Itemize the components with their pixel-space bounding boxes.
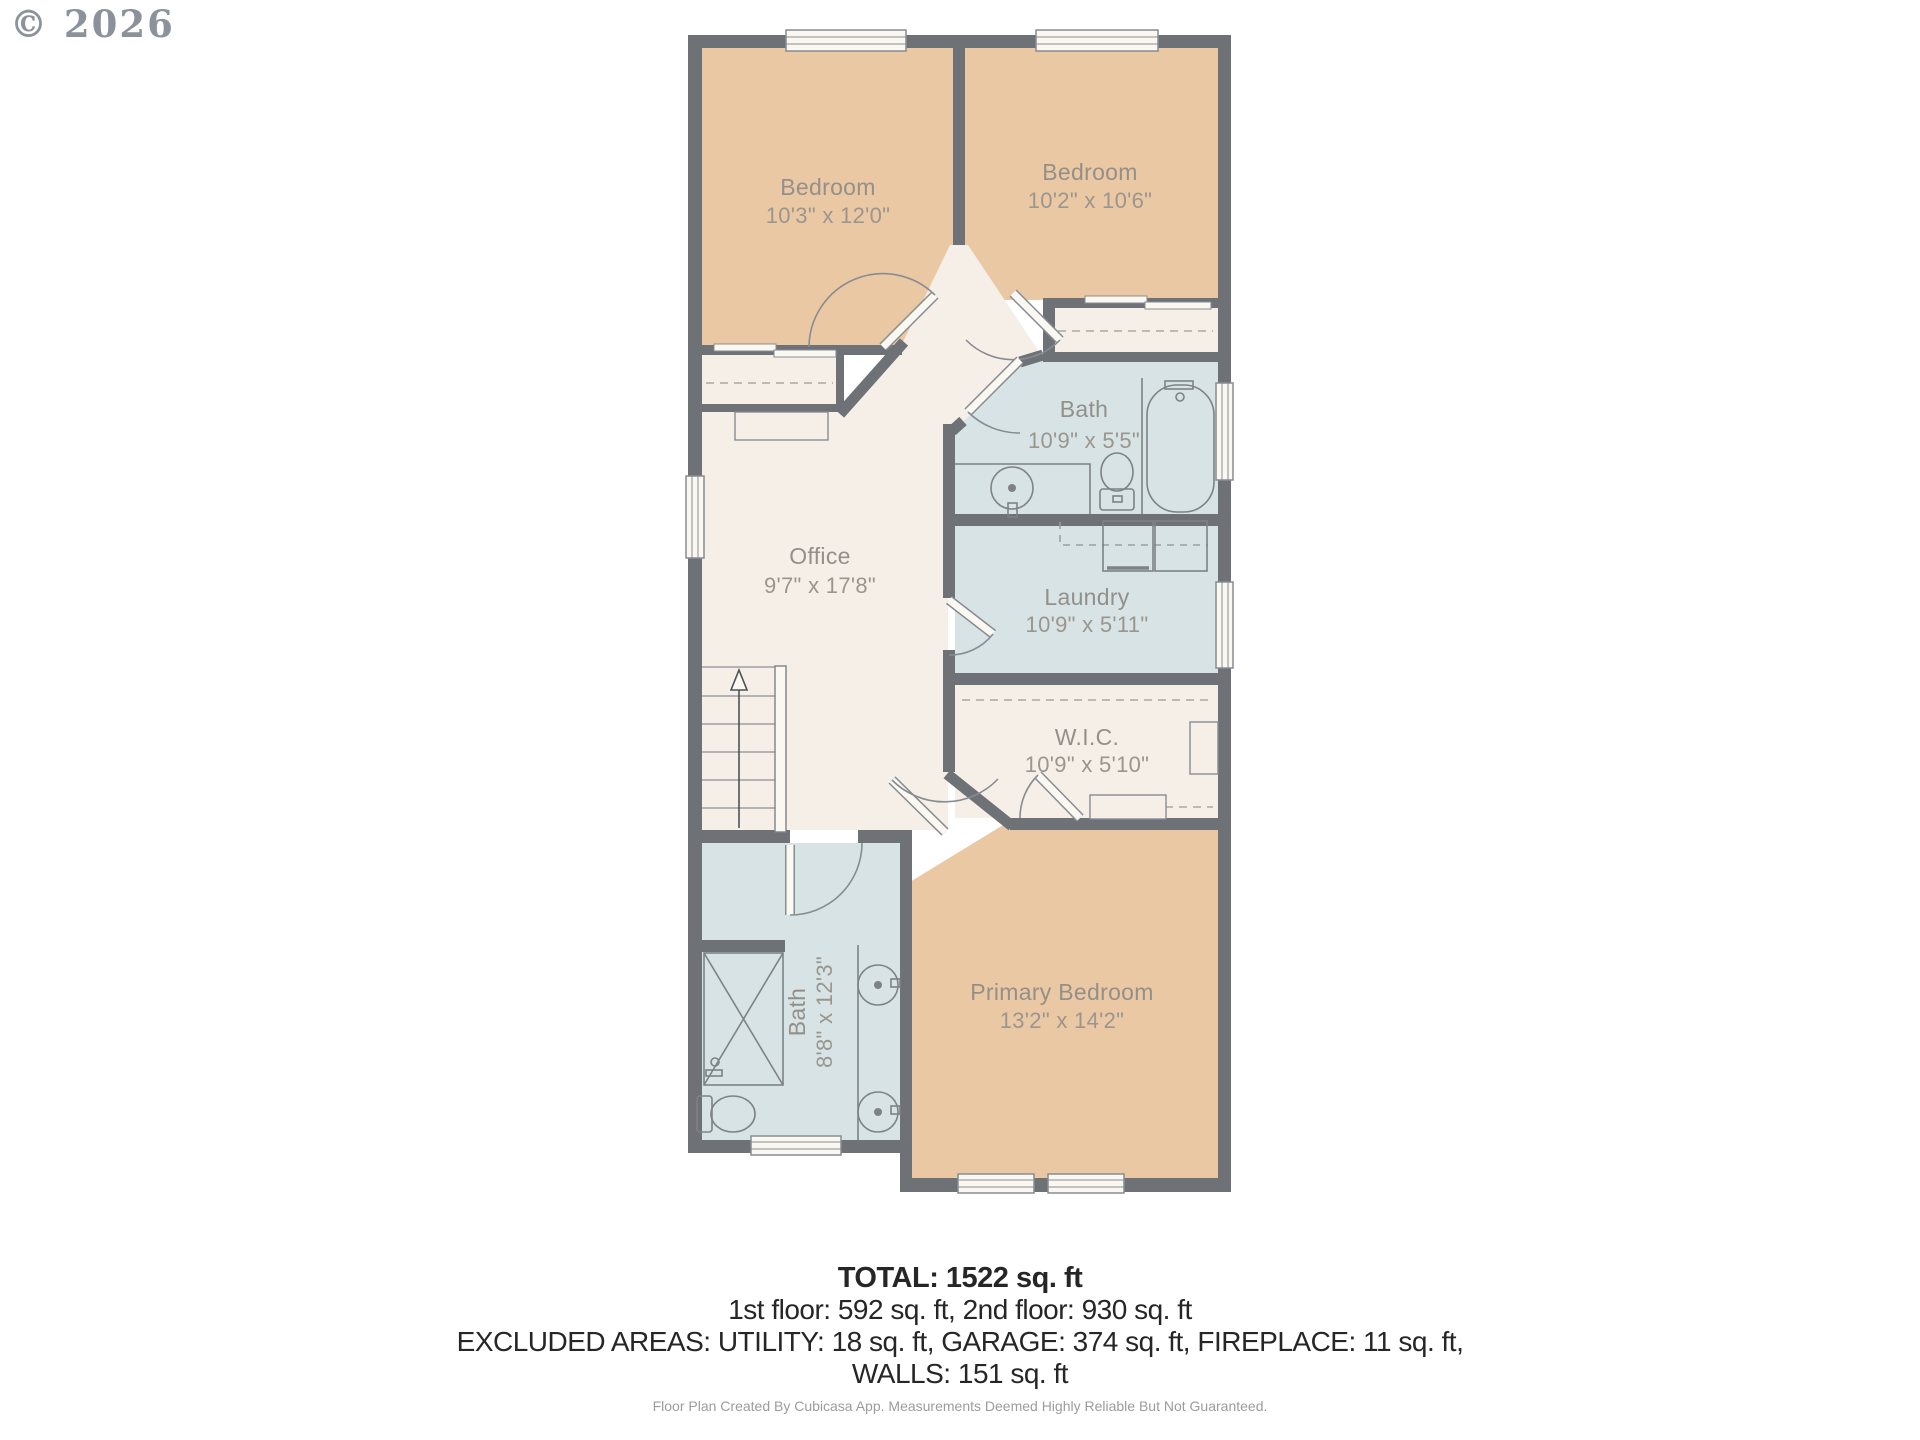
disclaimer-text: Floor Plan Created By Cubicasa App. Meas… [0,1398,1920,1414]
window [686,476,704,558]
wic-dims: 10'9" x 5'10" [1025,752,1150,777]
wic-shelf-bottom [1090,795,1166,819]
window [751,1136,841,1155]
bedroom2-closet-floor [1055,308,1218,352]
window [1048,1174,1124,1193]
window [1216,383,1233,480]
excluded-areas: EXCLUDED AREAS: UTILITY: 18 sq. ft, GARA… [0,1326,1920,1358]
wic-label: W.I.C. [1055,724,1119,750]
bath1-diagonal-stub-b [952,421,963,431]
window [1216,582,1233,668]
office-cabinet [735,412,828,440]
floorplan-canvas: Bedroom 10'3" x 12'0" Bedroom 10'2" x 10… [670,20,1250,1205]
stairs-railing [775,666,786,832]
floor-areas: 1st floor: 592 sq. ft, 2nd floor: 930 sq… [0,1294,1920,1326]
office-dims: 9'7" x 17'8" [764,573,876,598]
copyright-watermark: © 2026 [10,2,175,46]
bath1-dims: 10'9" x 5'5" [1028,428,1140,453]
window [958,1174,1034,1193]
page: © 2026 [0,0,1920,1440]
bedroom2-label: Bedroom [1042,159,1137,185]
bedroom1-label: Bedroom [780,174,875,200]
laundry-dims: 10'9" x 5'11" [1026,612,1149,637]
window [1036,30,1158,51]
primary-dims: 13'2" x 14'2" [1000,1008,1125,1033]
area-summary: TOTAL: 1522 sq. ft 1st floor: 592 sq. ft… [0,1262,1920,1390]
window [786,30,906,51]
wic-shelf-right [1190,722,1218,774]
total-area: TOTAL: 1522 sq. ft [0,1262,1920,1294]
walls-area: WALLS: 151 sq. ft [0,1358,1920,1390]
bedroom1-dims: 10'3" x 12'0" [766,203,891,228]
bath2-dims: 8'8" x 12'3" [812,956,837,1068]
bath2-label: Bath [784,988,810,1037]
bedroom2-dims: 10'2" x 10'6" [1028,188,1153,213]
bedroom1-closet-floor [702,355,836,404]
bath1-label: Bath [1060,396,1109,422]
office-label: Office [789,543,850,569]
laundry-label: Laundry [1044,584,1129,610]
primary-label: Primary Bedroom [970,979,1153,1005]
